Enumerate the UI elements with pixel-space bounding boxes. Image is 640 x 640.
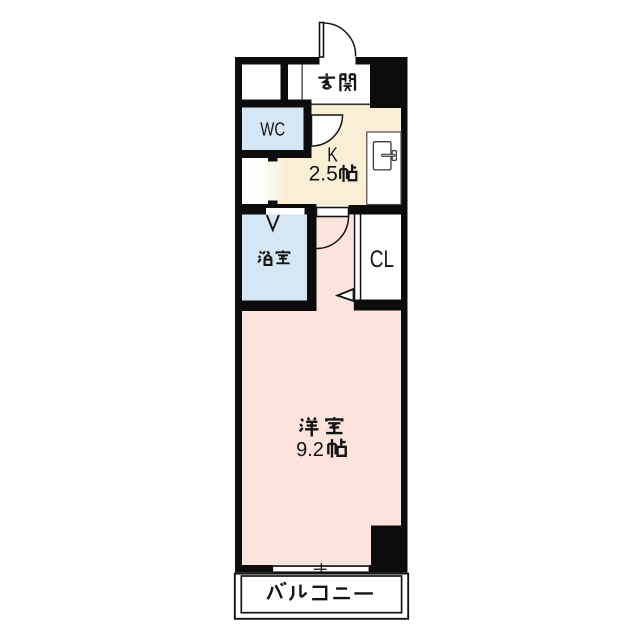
svg-text:CL: CL xyxy=(370,246,394,273)
svg-text:9.2: 9.2 xyxy=(296,439,324,461)
svg-text:2.5: 2.5 xyxy=(309,163,338,186)
svg-text:WC: WC xyxy=(260,119,285,140)
